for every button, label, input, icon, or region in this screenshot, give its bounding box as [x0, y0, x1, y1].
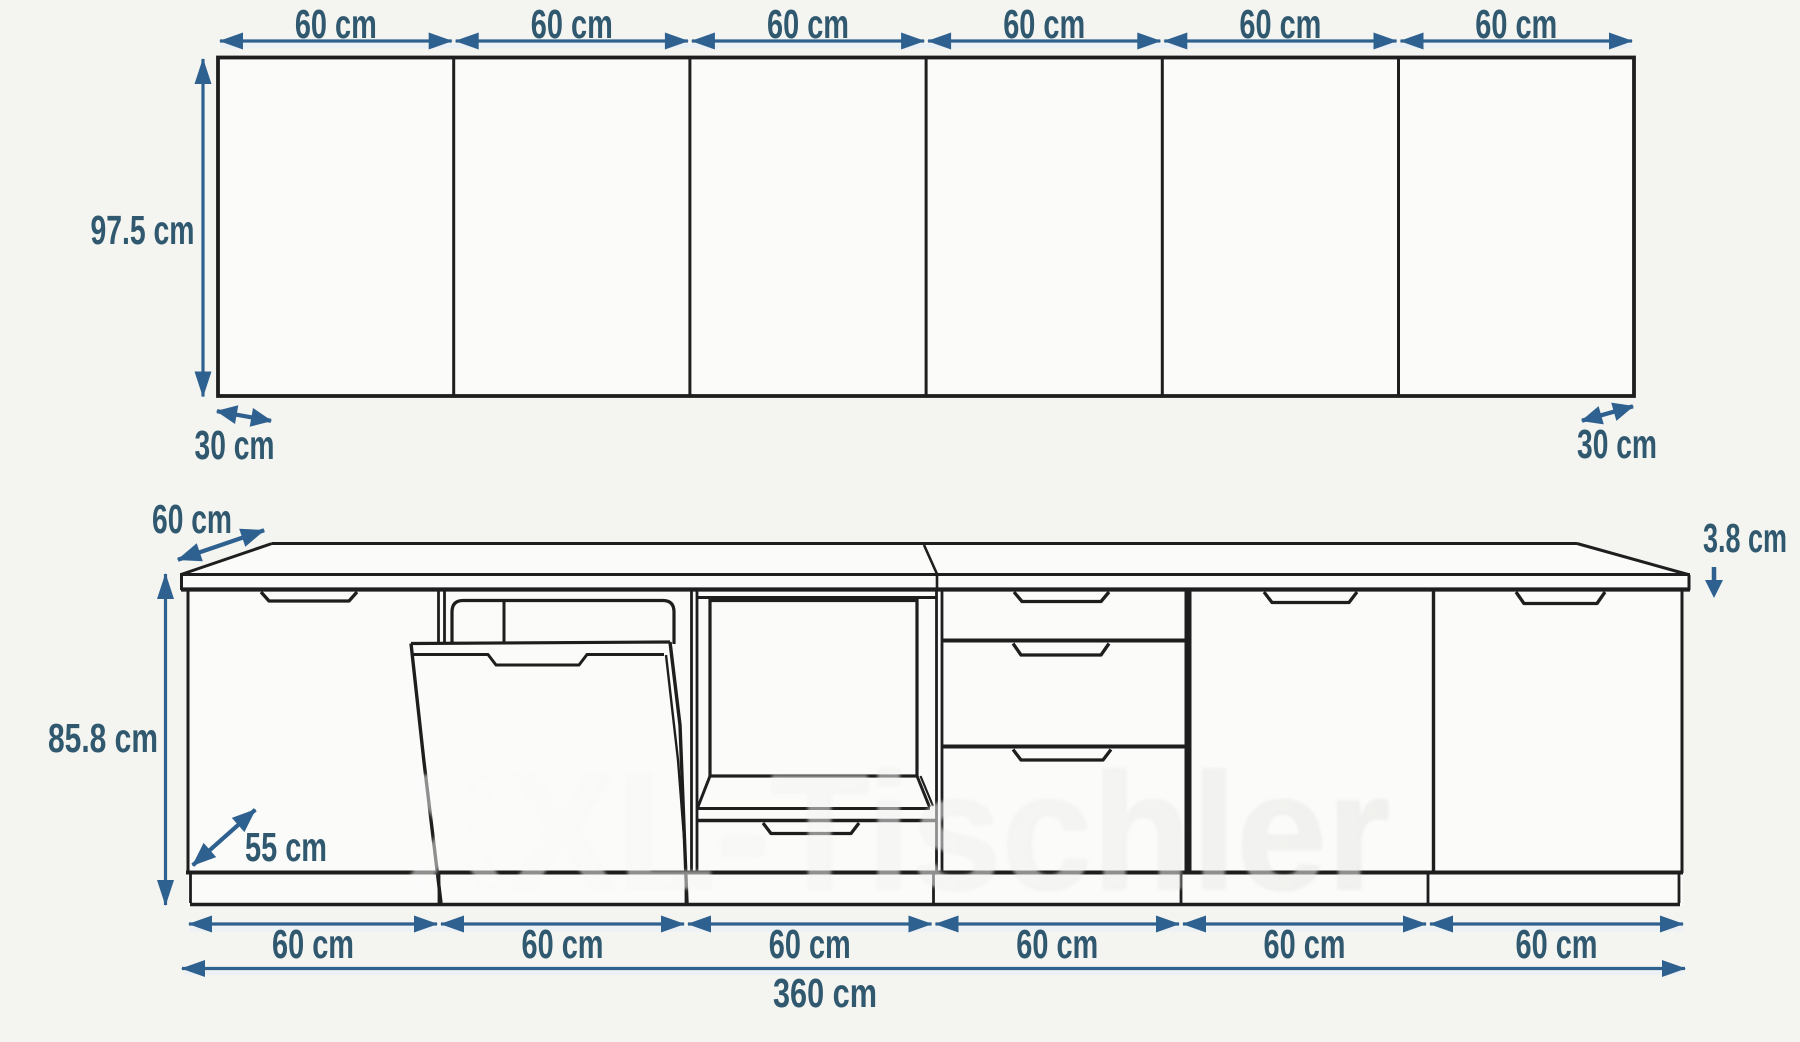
- svg-text:30 cm: 30 cm: [195, 422, 275, 468]
- svg-text:60 cm: 60 cm: [272, 921, 354, 967]
- svg-text:60 cm: 60 cm: [152, 496, 232, 542]
- svg-text:60 cm: 60 cm: [531, 1, 613, 47]
- svg-text:60 cm: 60 cm: [522, 921, 604, 967]
- svg-text:55 cm: 55 cm: [245, 824, 327, 870]
- svg-text:60 cm: 60 cm: [1516, 921, 1598, 967]
- svg-text:60 cm: 60 cm: [769, 921, 851, 967]
- svg-text:85.8 cm: 85.8 cm: [48, 715, 158, 761]
- svg-text:60 cm: 60 cm: [1264, 921, 1346, 967]
- svg-text:30 cm: 30 cm: [1577, 421, 1657, 467]
- svg-text:60 cm: 60 cm: [1239, 1, 1321, 47]
- svg-text:3.8 cm: 3.8 cm: [1703, 515, 1787, 561]
- svg-text:60 cm: 60 cm: [1475, 1, 1557, 47]
- svg-text:97.5 cm: 97.5 cm: [91, 207, 195, 253]
- svg-text:60 cm: 60 cm: [1016, 921, 1098, 967]
- svg-text:60 cm: 60 cm: [767, 1, 849, 47]
- svg-text:60 cm: 60 cm: [1003, 1, 1085, 47]
- svg-text:XXL-Tischler: XXL-Tischler: [400, 740, 1390, 925]
- svg-text:360 cm: 360 cm: [773, 970, 877, 1016]
- svg-text:60 cm: 60 cm: [295, 1, 377, 47]
